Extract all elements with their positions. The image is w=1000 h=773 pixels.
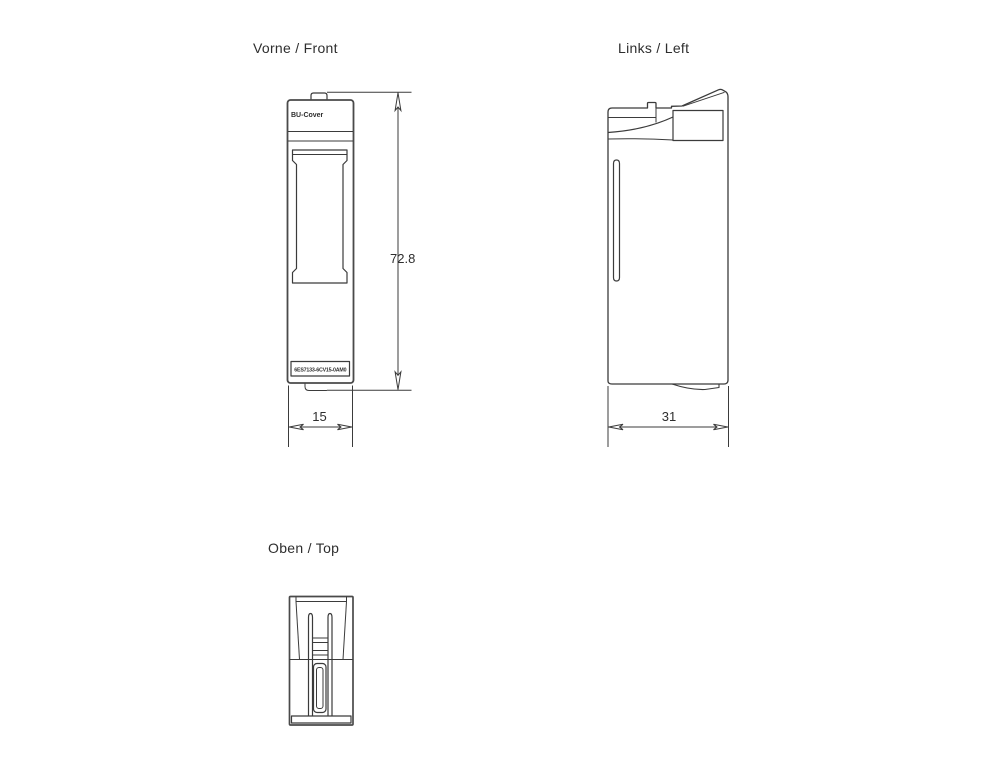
front-top-tab — [311, 93, 327, 100]
front-height-dimension: 72.8 — [327, 92, 415, 390]
left-flap-lower-edge — [683, 92, 725, 106]
technical-drawing-page: Vorne / Front Links / Left Oben / Top BU… — [0, 0, 1000, 773]
top-base-bar — [292, 716, 352, 723]
top-body-outline — [290, 597, 354, 726]
front-view-drawing: BU-Cover 6ES7133-6CV15-0AM0 — [288, 93, 354, 391]
top-slope-left — [296, 602, 300, 660]
dimension-drawing-svg: Vorne / Front Links / Left Oben / Top BU… — [0, 0, 1000, 773]
top-cross-bar-2 — [313, 651, 329, 656]
top-center-slot-outer — [314, 664, 327, 713]
left-curve-upper — [608, 117, 673, 133]
front-bottom-notch — [305, 384, 328, 391]
left-body-outline — [608, 89, 728, 384]
depth-dimension-label: 31 — [662, 409, 676, 424]
front-part-number-label: 6ES7133-6CV15-0AM0 — [294, 368, 346, 374]
height-dimension-label: 72.8 — [390, 251, 415, 266]
left-curve-lower — [608, 139, 673, 140]
front-door-outline — [293, 150, 348, 283]
left-view-drawing — [608, 89, 728, 389]
front-cover-label: BU-Cover — [291, 112, 324, 119]
left-bottom-lip — [672, 384, 719, 390]
front-width-dimension: 15 — [289, 386, 353, 448]
top-prong-left — [309, 614, 313, 717]
top-view-title: Oben / Top — [268, 540, 339, 556]
left-side-slot — [614, 160, 620, 281]
width-dimension-label: 15 — [312, 409, 326, 424]
top-prong-right — [328, 614, 332, 717]
left-view-title: Links / Left — [618, 40, 689, 56]
top-slope-right — [343, 602, 347, 660]
top-cross-bar-1 — [313, 638, 329, 643]
top-center-slot-inner — [317, 668, 324, 709]
left-depth-dimension: 31 — [608, 386, 729, 447]
left-recess-panel — [673, 111, 723, 141]
top-view-drawing — [290, 597, 354, 726]
front-view-title: Vorne / Front — [253, 40, 338, 56]
